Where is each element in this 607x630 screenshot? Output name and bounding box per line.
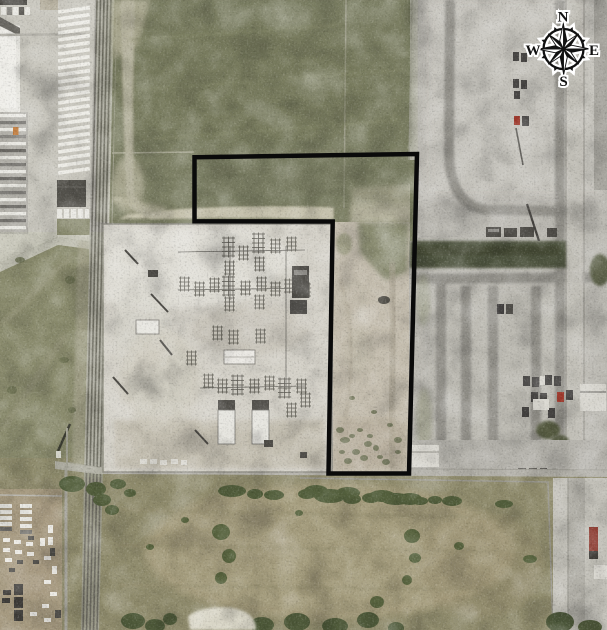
svg-text:N: N [558,10,569,26]
svg-text:S: S [559,74,567,90]
svg-text:E: E [589,43,599,59]
svg-text:W: W [526,43,541,59]
